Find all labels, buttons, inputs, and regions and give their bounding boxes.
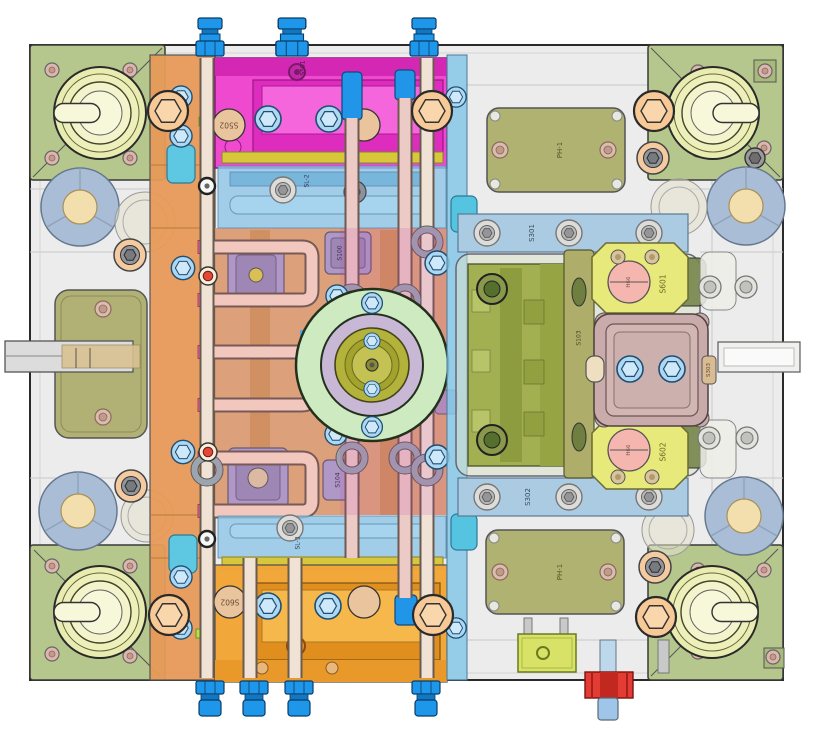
plate-screw [95, 409, 111, 425]
support-pillar [41, 168, 119, 246]
socket-screw [636, 220, 662, 246]
corner-guide-plate-top-left [30, 45, 165, 180]
dowel [477, 274, 507, 304]
ring-screw [362, 417, 383, 438]
support-pillar [39, 472, 117, 550]
right-slide-bar [718, 342, 800, 372]
hose-fitting [196, 681, 224, 716]
pin [256, 662, 268, 674]
svg-text:S602: S602 [220, 598, 239, 607]
hose-fitting [412, 681, 440, 716]
guide-bushing [54, 67, 146, 159]
socket-screw [556, 220, 582, 246]
slide-block-s303: S303 [586, 313, 716, 427]
corner-screw [766, 650, 780, 664]
blue-hex-bolt [659, 356, 685, 382]
cad-mold-assembly-view: S502 S501 SL-2 SL-3 S602 [0, 0, 813, 733]
corner-screw [45, 559, 59, 573]
socket-screw [474, 484, 500, 510]
limit-bracket-s602: H66 S602 [592, 419, 688, 489]
corner-screw [123, 559, 137, 573]
label-h66: H66 [626, 444, 632, 456]
part-tag-blank [348, 586, 380, 618]
label-s104: S104 [335, 472, 342, 487]
ring-screw [699, 276, 721, 298]
dowel-target [199, 531, 215, 547]
corner-screw [123, 151, 137, 165]
label-s100: S100 [337, 245, 344, 260]
blue-hex-bolt [617, 356, 643, 382]
hose-fitting [240, 681, 268, 716]
ph1-plate-top: PH-1 [487, 108, 625, 192]
left-slide-plate [5, 290, 147, 438]
slide-knob [586, 356, 604, 382]
dowel-target [199, 178, 215, 194]
label-s301: S301 [528, 224, 536, 242]
socket-screw [556, 484, 582, 510]
support-pillar [705, 477, 783, 555]
ring-screw [736, 427, 758, 449]
guide-bushing [667, 67, 759, 159]
part-tag-s502: S502 [213, 109, 245, 141]
label-s103: S103 [576, 330, 583, 345]
label-h66: H66 [626, 276, 632, 288]
label-sl2: SL-2 [304, 174, 311, 187]
plate-screw [95, 301, 111, 317]
blue-hex-bolt [255, 106, 281, 132]
corner-screw [758, 64, 772, 78]
blue-hex-screw [425, 445, 449, 469]
blue-hex-bolt [315, 593, 341, 619]
corner-screw [45, 647, 59, 661]
blue-hex-screw [170, 566, 192, 588]
support-pillar [707, 167, 785, 245]
label-ph1: PH-1 [556, 142, 564, 158]
socket-screw [474, 220, 500, 246]
blue-hex-screw [171, 256, 194, 279]
red-plug [199, 267, 217, 285]
pin [326, 662, 338, 674]
label-s302: S302 [524, 488, 532, 506]
hose-fittings-bottom[interactable] [196, 681, 440, 716]
label-s601: S601 [659, 274, 668, 293]
cad-viewport[interactable]: S502 S501 SL-2 SL-3 S602 [0, 0, 813, 733]
blue-hex-screw [425, 251, 449, 275]
ring-screw [364, 333, 380, 349]
blue-hex-bolt [316, 106, 342, 132]
label-s303: S303 [706, 363, 712, 377]
guide-pin [658, 640, 669, 673]
corner-screw [45, 151, 59, 165]
ph1-plate-bottom: PH-1 [486, 530, 624, 614]
plate-screw [600, 564, 616, 580]
blue-hex-bolt [255, 593, 281, 619]
label-ph1: PH-1 [556, 564, 564, 580]
locating-ring [296, 289, 448, 441]
limit-bracket-s601: H66 S601 [592, 243, 688, 313]
label-sl3: SL-3 [295, 536, 302, 549]
hose-fitting [410, 18, 438, 56]
socket-screw [270, 177, 296, 203]
dowel [477, 425, 507, 455]
core-block [468, 264, 564, 466]
hose-fitting [276, 18, 308, 56]
hose-fitting [285, 681, 313, 716]
water-elbow [451, 514, 477, 550]
hose-fitting [196, 18, 224, 56]
ring-screw [362, 293, 383, 314]
red-plug [199, 443, 217, 461]
corner-screw [45, 63, 59, 77]
pipe-connector [395, 70, 415, 100]
ring-screw [735, 276, 757, 298]
pipe-connector [342, 72, 362, 120]
ring-screw [364, 381, 380, 397]
ring-screw [698, 427, 720, 449]
part-tag-s602: S602 [214, 586, 246, 618]
plate-screw [492, 142, 508, 158]
blue-hex-screw [171, 440, 194, 463]
grey-hex-bolt [745, 148, 765, 168]
svg-text:S502: S502 [219, 121, 238, 130]
label-s602-bracket: S602 [659, 442, 668, 461]
corner-screw [757, 563, 771, 577]
plate-screw [492, 564, 508, 580]
guide-bushing [54, 566, 146, 658]
label-s501: S501 [300, 60, 307, 75]
core-assembly: S301 S302 S103 H66 [456, 214, 758, 516]
corner-guide-plate-bottom-left [30, 545, 165, 680]
guide-bushing [666, 566, 758, 658]
water-elbow [167, 145, 195, 183]
plate-screw [600, 142, 616, 158]
